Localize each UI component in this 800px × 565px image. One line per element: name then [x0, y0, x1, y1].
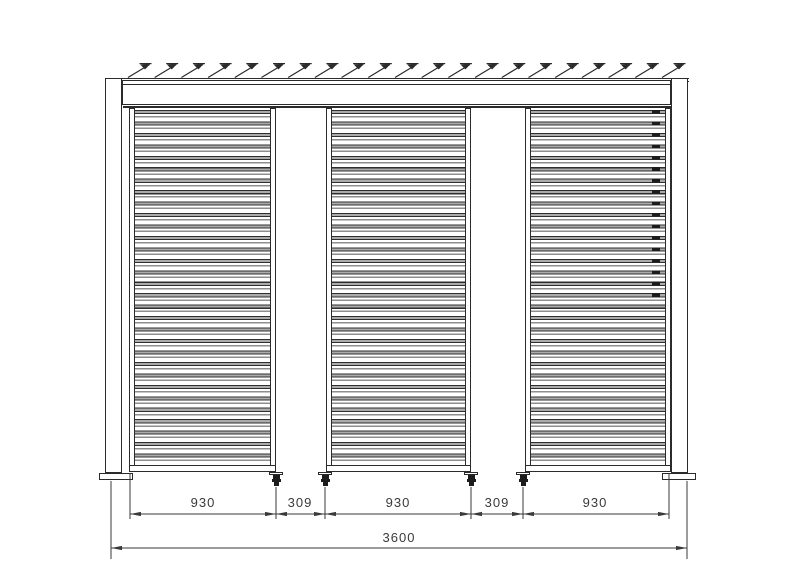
elevation-drawing: 930 309 930 309 930 3600	[0, 0, 800, 565]
dimension-lines	[0, 0, 800, 565]
dimension-label-panel-1: 930	[191, 495, 216, 510]
dimension-label-gap-2: 309	[485, 495, 510, 510]
dimension-label-gap-1: 309	[288, 495, 313, 510]
dimension-label-panel-3: 930	[583, 495, 608, 510]
dimension-label-overall: 3600	[383, 530, 416, 545]
dimension-label-panel-2: 930	[386, 495, 411, 510]
